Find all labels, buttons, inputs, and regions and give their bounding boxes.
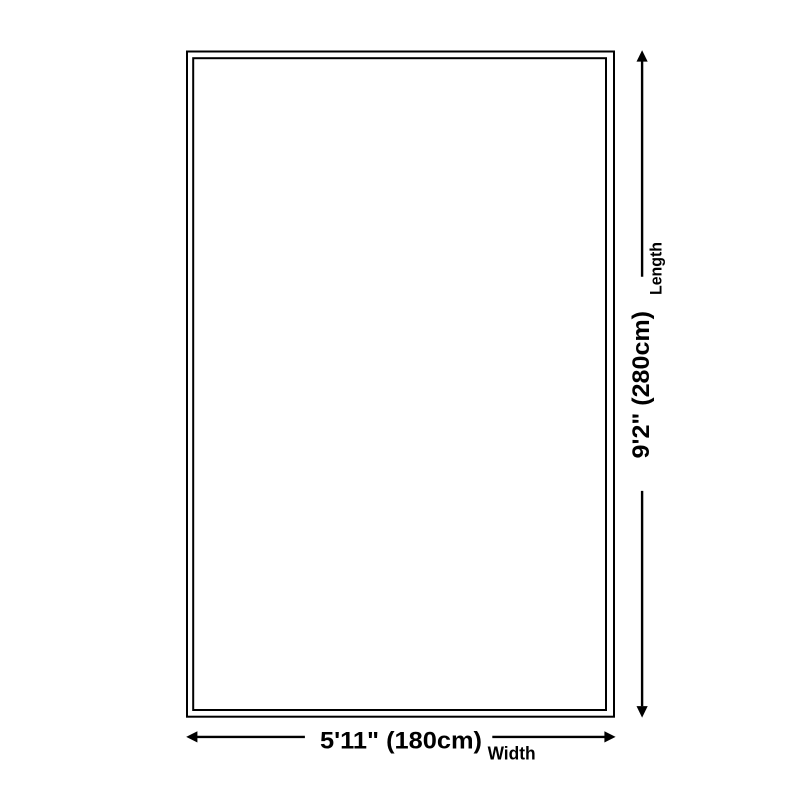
svg-text:5'11" (180cm): 5'11" (180cm)	[320, 728, 482, 755]
svg-text:Width: Width	[488, 744, 536, 764]
svg-text:9'2" (280cm): 9'2" (280cm)	[628, 311, 655, 459]
svg-text:Length: Length	[647, 242, 666, 295]
